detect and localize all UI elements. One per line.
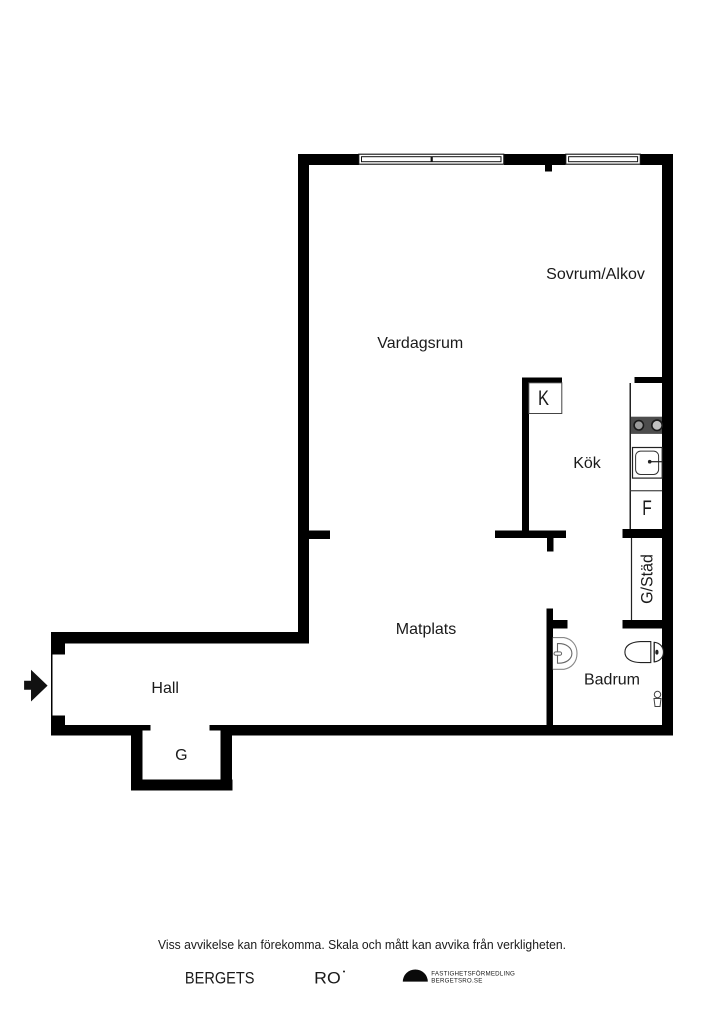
svg-text:F: F: [642, 497, 652, 520]
svg-text:FASTIGHETSFÖRMEDLING: FASTIGHETSFÖRMEDLING: [431, 971, 515, 978]
svg-text:Viss avvikelse kan förekomma.: Viss avvikelse kan förekomma. Skala och …: [158, 938, 566, 952]
svg-text:G: G: [175, 747, 187, 764]
svg-text:Badrum: Badrum: [584, 672, 640, 689]
svg-text:Hall: Hall: [151, 680, 179, 697]
svg-text:BERGETS: BERGETS: [185, 970, 255, 988]
svg-text:Kök: Kök: [573, 455, 602, 472]
svg-text:Sovrum/Alkov: Sovrum/Alkov: [546, 266, 645, 283]
svg-text:Vardagsrum: Vardagsrum: [377, 335, 463, 352]
svg-text:Matplats: Matplats: [396, 621, 456, 638]
svg-text:G/Städ: G/Städ: [638, 554, 657, 604]
svg-text:RO: RO: [314, 970, 341, 988]
svg-text:BERGETSRO.SE: BERGETSRO.SE: [431, 978, 482, 985]
svg-text:K: K: [538, 387, 549, 410]
